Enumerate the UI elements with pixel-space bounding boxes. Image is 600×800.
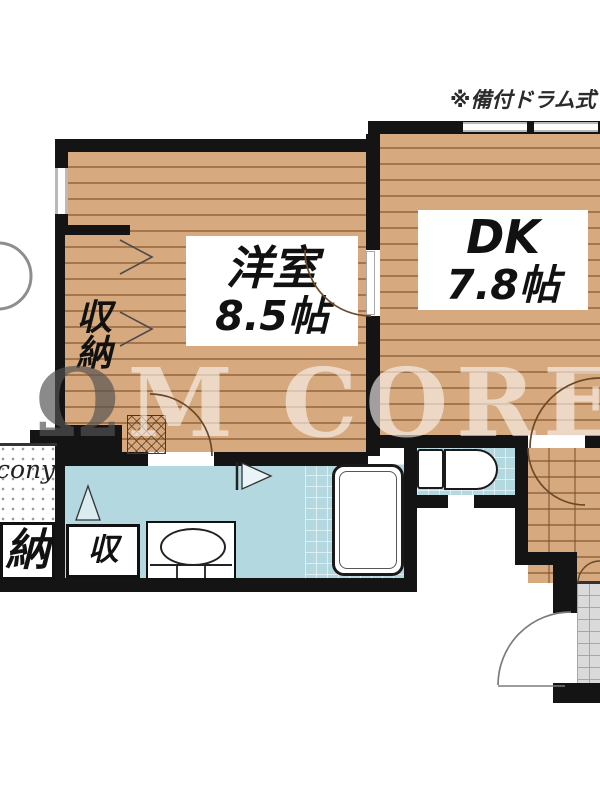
storage-label: 納 — [6, 527, 50, 575]
compass-icon — [0, 243, 31, 309]
door-opening — [448, 495, 474, 508]
bathtub — [332, 464, 404, 576]
dk-name: DK — [466, 213, 540, 263]
wall — [366, 134, 380, 250]
wall — [55, 139, 370, 152]
wall — [553, 552, 577, 613]
wall — [55, 466, 65, 590]
annotation-note: ※備付ドラム式 — [450, 84, 596, 114]
watermark-prefix: Ω — [35, 348, 128, 459]
watermark-text: M CORE — [128, 348, 600, 459]
western-room-label: 洋室 8.5帖 — [186, 236, 358, 346]
door-leaf — [366, 251, 375, 315]
storage-box: 納 — [0, 522, 55, 580]
watermark: ΩM CORE — [35, 348, 600, 459]
entrance-tile-floor — [577, 583, 600, 687]
wall — [553, 683, 600, 703]
entry-door-arc — [498, 612, 571, 685]
washbasin-bowl — [160, 528, 226, 566]
dk-label: DK 7.8帖 — [418, 210, 588, 310]
window — [534, 122, 598, 132]
entry-door-opening — [565, 613, 577, 683]
storage-small-label: 収 — [88, 534, 119, 567]
wall — [55, 225, 130, 235]
balcony-label: cony — [0, 455, 55, 484]
dk-size: 7.8帖 — [446, 263, 560, 307]
washbasin-unit — [146, 521, 236, 580]
wall — [55, 139, 68, 169]
western-room-name: 洋室 — [226, 244, 318, 294]
entrance-step-line — [577, 581, 600, 584]
storage-small-box: 収 — [66, 524, 140, 578]
floorplan-canvas: 洋室 8.5帖 DK 7.8帖 収納 納 収 cony ΩM CORE ※備付ド… — [0, 0, 600, 800]
window — [55, 168, 68, 214]
window — [463, 122, 527, 132]
western-room-size: 8.5帖 — [215, 294, 329, 338]
wall — [0, 578, 415, 592]
washbasin-drawers — [150, 564, 232, 578]
